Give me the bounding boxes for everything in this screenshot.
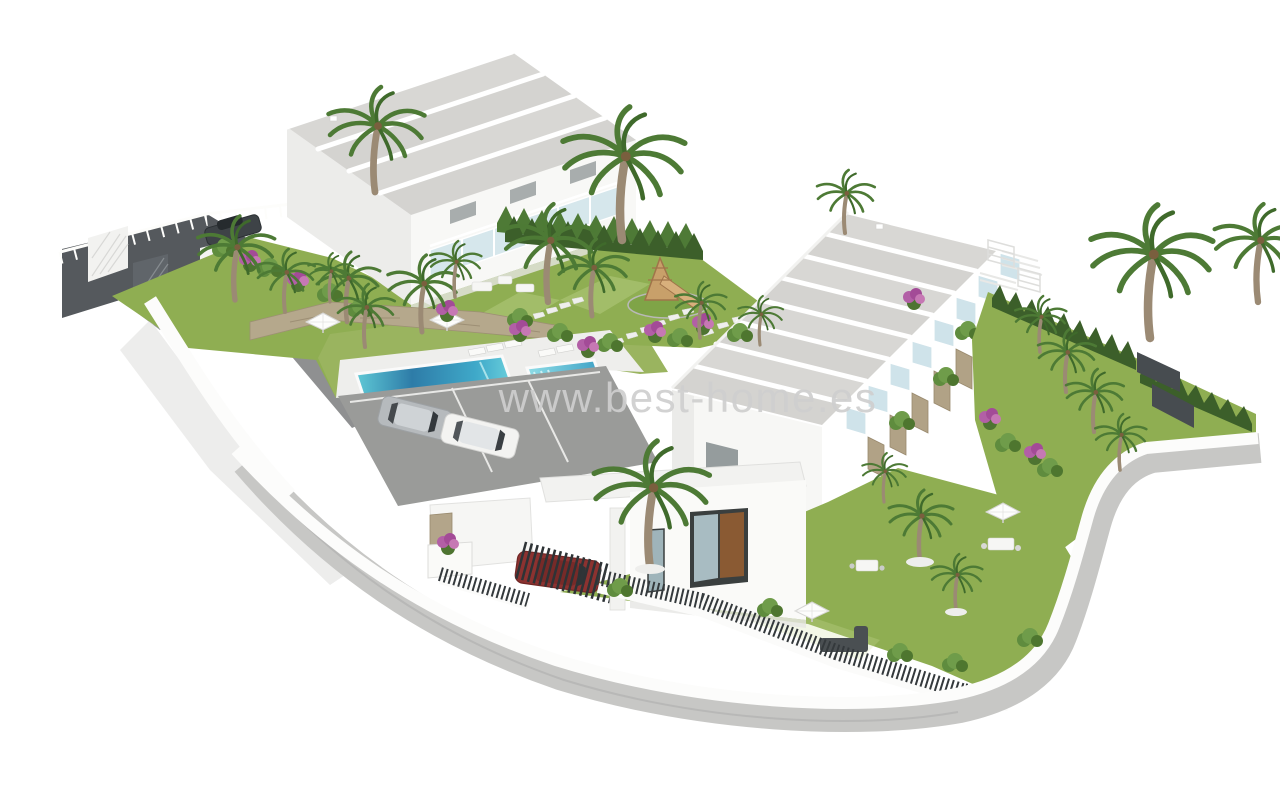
render-scene: www.best-home.es (0, 0, 1280, 800)
roof-vent (330, 116, 337, 121)
glass-door (690, 508, 748, 588)
roof-vent (876, 224, 883, 229)
watermark-text: www.best-home.es (498, 374, 878, 421)
architectural-render: www.best-home.es (0, 0, 1280, 800)
